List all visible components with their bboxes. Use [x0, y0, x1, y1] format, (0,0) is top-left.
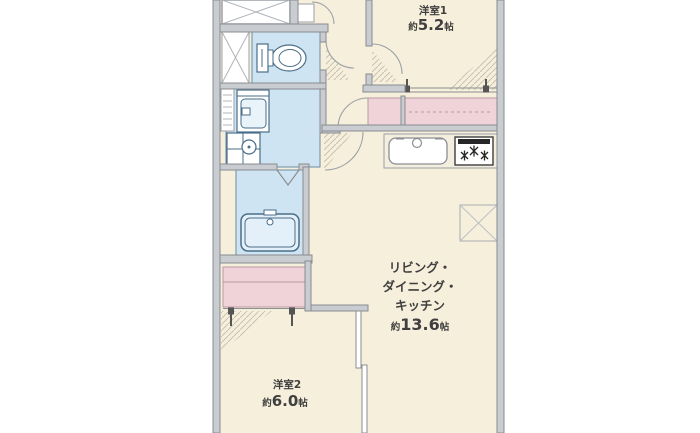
ldk-name-line1: リビング・ — [389, 260, 452, 275]
side-storage — [222, 32, 249, 83]
pipe-space-louver — [221, 89, 234, 131]
kitchen-sink-icon — [389, 138, 447, 164]
shoe-cabinet — [296, 4, 314, 22]
stove-icon — [455, 137, 493, 165]
ldk-name-line2: ダイニング・ — [382, 279, 457, 294]
ldk-name-line3: キッチン — [395, 298, 445, 313]
floor-plan: 洋室1 約5.2帖 リビング・ ダイニング・ キッチン 約13.6帖 洋室2 約… — [0, 0, 700, 433]
room2-closet — [223, 267, 310, 307]
floor-plan-page: 洋室1 約5.2帖 リビング・ ダイニング・ キッチン 約13.6帖 洋室2 約… — [0, 0, 700, 433]
room2-name-label: 洋室2 — [273, 378, 301, 391]
washbasin-icon — [237, 90, 269, 132]
outer-wall-left — [213, 0, 220, 433]
bathtub-icon — [241, 210, 299, 251]
entry-closet — [222, 0, 290, 24]
washing-machine-icon — [227, 133, 260, 165]
outer-wall-right — [497, 0, 504, 433]
room1-closet — [405, 98, 497, 125]
toilet-icon — [257, 44, 306, 72]
hall-closet — [368, 98, 401, 125]
